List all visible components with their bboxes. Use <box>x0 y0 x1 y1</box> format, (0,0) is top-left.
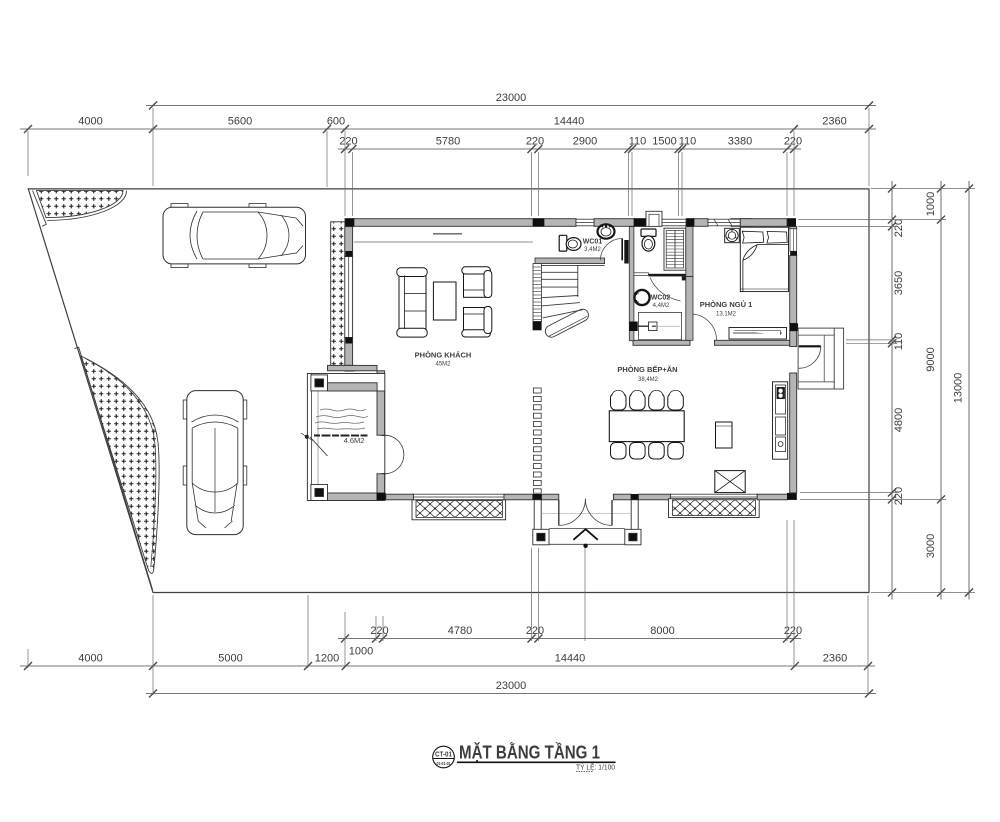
svg-text:WC01: WC01 <box>583 239 603 246</box>
svg-text:PHÒNG BẾP+ĂN: PHÒNG BẾP+ĂN <box>617 364 677 374</box>
svg-text:220: 220 <box>526 625 544 637</box>
svg-text:CT-01: CT-01 <box>435 752 452 759</box>
svg-text:01-01-01: 01-01-01 <box>437 761 451 766</box>
svg-text:5600: 5600 <box>228 116 252 128</box>
svg-text:4000: 4000 <box>78 653 102 665</box>
svg-text:3650: 3650 <box>893 271 905 295</box>
svg-text:9000: 9000 <box>925 347 937 371</box>
svg-text:220: 220 <box>893 219 905 237</box>
svg-text:TỶ LỆ: 1/100: TỶ LỆ: 1/100 <box>576 763 615 772</box>
svg-text:2360: 2360 <box>823 653 847 665</box>
svg-text:5780: 5780 <box>436 136 460 148</box>
svg-text:PHÒNG KHÁCH: PHÒNG KHÁCH <box>415 351 472 360</box>
svg-text:23000: 23000 <box>496 680 527 692</box>
svg-text:220: 220 <box>784 625 802 637</box>
svg-text:600: 600 <box>327 116 345 128</box>
svg-text:13000: 13000 <box>953 373 965 404</box>
svg-text:4780: 4780 <box>448 625 472 637</box>
svg-text:3,4M2: 3,4M2 <box>584 247 601 253</box>
svg-text:2900: 2900 <box>573 136 597 148</box>
svg-text:4000: 4000 <box>78 116 102 128</box>
svg-text:WC02: WC02 <box>651 295 671 302</box>
svg-text:110: 110 <box>679 136 697 148</box>
svg-text:1200: 1200 <box>315 653 339 665</box>
svg-text:4.6M2: 4.6M2 <box>344 436 365 445</box>
svg-text:8000: 8000 <box>650 625 674 637</box>
svg-text:14440: 14440 <box>554 116 585 128</box>
svg-text:220: 220 <box>370 625 388 637</box>
svg-text:2360: 2360 <box>822 116 846 128</box>
svg-text:PHÒNG NGỦ 1: PHÒNG NGỦ 1 <box>700 300 753 309</box>
svg-text:220: 220 <box>784 136 802 148</box>
svg-text:23000: 23000 <box>496 92 527 104</box>
svg-text:110: 110 <box>629 136 647 148</box>
svg-text:3000: 3000 <box>925 534 937 558</box>
svg-text:MẶT BẰNG TẦNG 1: MẶT BẰNG TẦNG 1 <box>459 742 600 763</box>
svg-text:3380: 3380 <box>728 136 752 148</box>
svg-text:1000: 1000 <box>349 646 373 658</box>
svg-text:38,4M2: 38,4M2 <box>638 377 659 383</box>
svg-text:220: 220 <box>526 136 544 148</box>
svg-text:4,4M2: 4,4M2 <box>653 303 670 309</box>
svg-text:4800: 4800 <box>893 408 905 432</box>
svg-text:14440: 14440 <box>555 653 586 665</box>
svg-text:220: 220 <box>339 136 357 148</box>
svg-text:1000: 1000 <box>925 192 937 216</box>
svg-text:5000: 5000 <box>218 653 242 665</box>
svg-text:13,1M2: 13,1M2 <box>716 312 737 318</box>
svg-text:1500: 1500 <box>652 136 676 148</box>
svg-text:110: 110 <box>893 333 905 351</box>
svg-text:45M2: 45M2 <box>435 362 451 368</box>
svg-text:220: 220 <box>893 487 905 505</box>
